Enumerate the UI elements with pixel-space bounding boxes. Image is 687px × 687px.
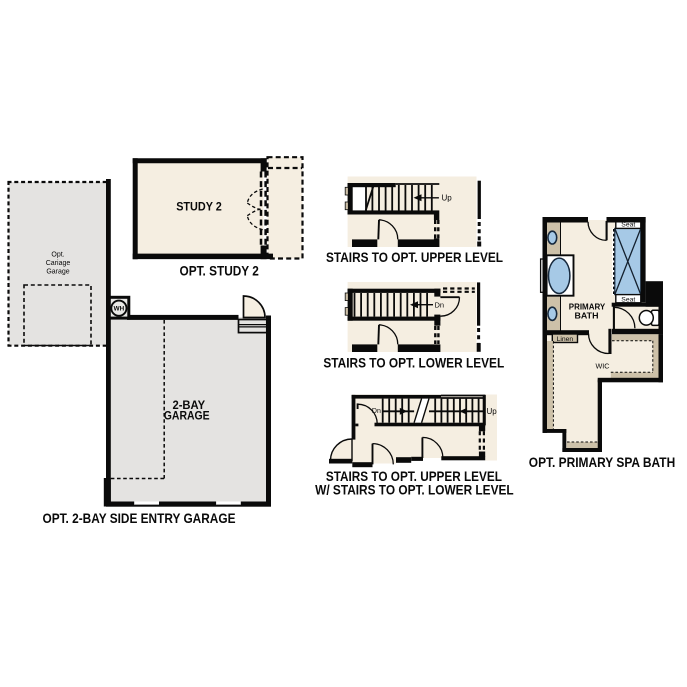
svg-text:Opt.: Opt.	[51, 251, 64, 258]
svg-text:Up: Up	[442, 194, 453, 203]
svg-text:Up: Up	[487, 407, 498, 416]
svg-text:Dn: Dn	[372, 408, 381, 415]
svg-text:GARAGE: GARAGE	[164, 409, 210, 423]
svg-text:WIC: WIC	[596, 362, 610, 371]
svg-text:BATH: BATH	[575, 311, 599, 321]
svg-text:WH: WH	[114, 307, 125, 313]
svg-text:OPT. 2-BAY SIDE ENTRY GARAGE: OPT. 2-BAY SIDE ENTRY GARAGE	[43, 510, 236, 526]
svg-text:W/ STAIRS TO OPT. LOWER LEVEL: W/ STAIRS TO OPT. LOWER LEVEL	[315, 481, 514, 497]
svg-text:STAIRS TO OPT. LOWER LEVEL: STAIRS TO OPT. LOWER LEVEL	[323, 355, 504, 371]
svg-text:Garage: Garage	[46, 268, 69, 275]
svg-text:STAIRS TO OPT. UPPER LEVEL: STAIRS TO OPT. UPPER LEVEL	[326, 249, 503, 265]
svg-text:OPT. PRIMARY SPA BATH: OPT. PRIMARY SPA BATH	[529, 454, 675, 470]
svg-text:Linen: Linen	[557, 336, 574, 343]
svg-text:Seat: Seat	[621, 222, 635, 229]
svg-text:Cariage: Cariage	[46, 260, 71, 267]
svg-text:OPT. STUDY 2: OPT. STUDY 2	[180, 262, 259, 278]
svg-text:Dn: Dn	[435, 301, 445, 310]
svg-text:Seat: Seat	[621, 296, 635, 303]
svg-text:STUDY 2: STUDY 2	[176, 201, 222, 214]
